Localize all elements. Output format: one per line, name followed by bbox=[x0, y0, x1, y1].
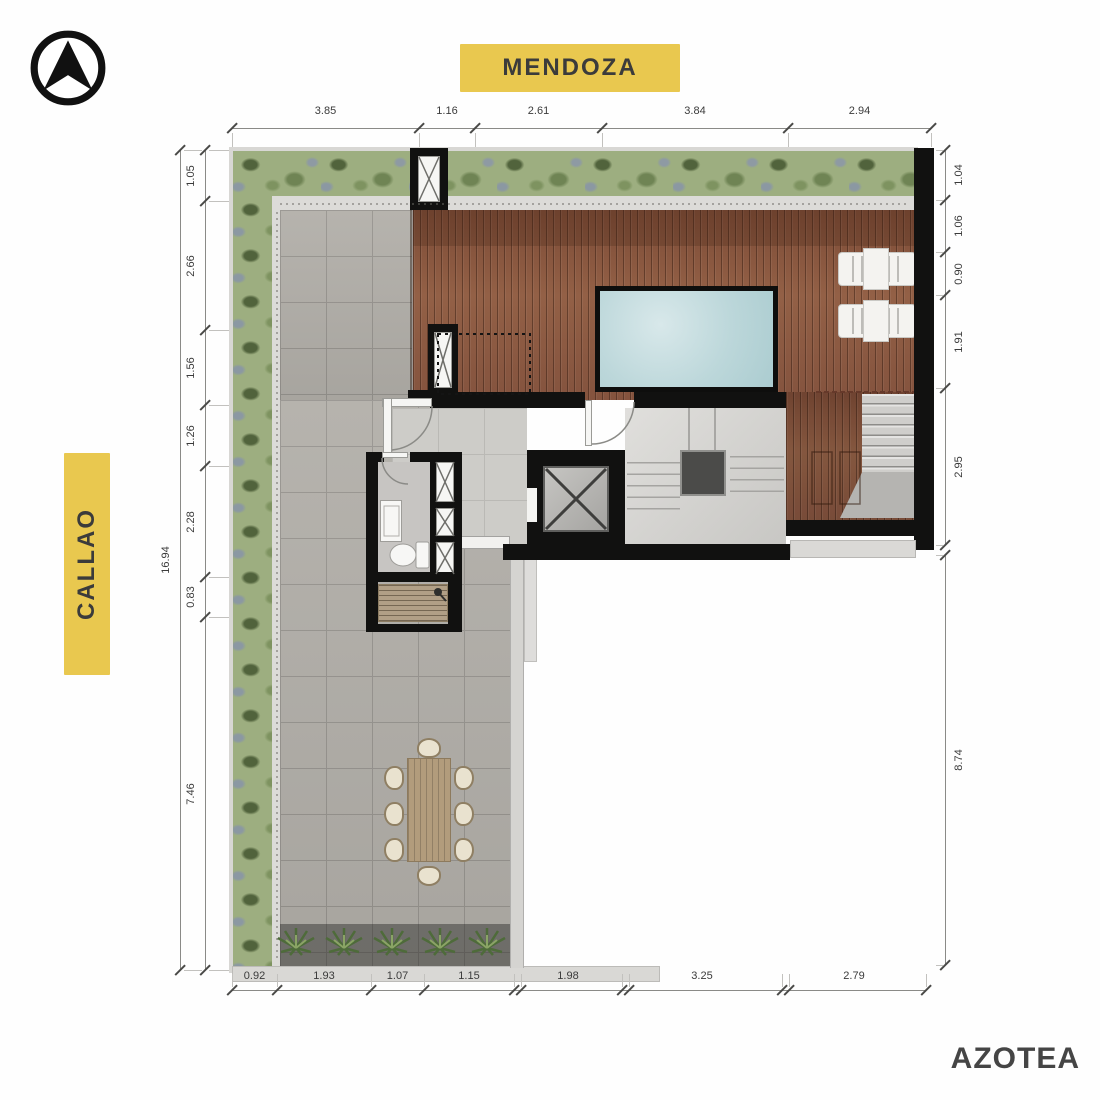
sink-basin bbox=[384, 506, 399, 536]
toilet bbox=[390, 542, 429, 568]
plan-lineart-overlay bbox=[0, 0, 1100, 1100]
floor-plan-page: { "page": { "title_plan": "AZOTEA" }, "s… bbox=[0, 0, 1100, 1100]
